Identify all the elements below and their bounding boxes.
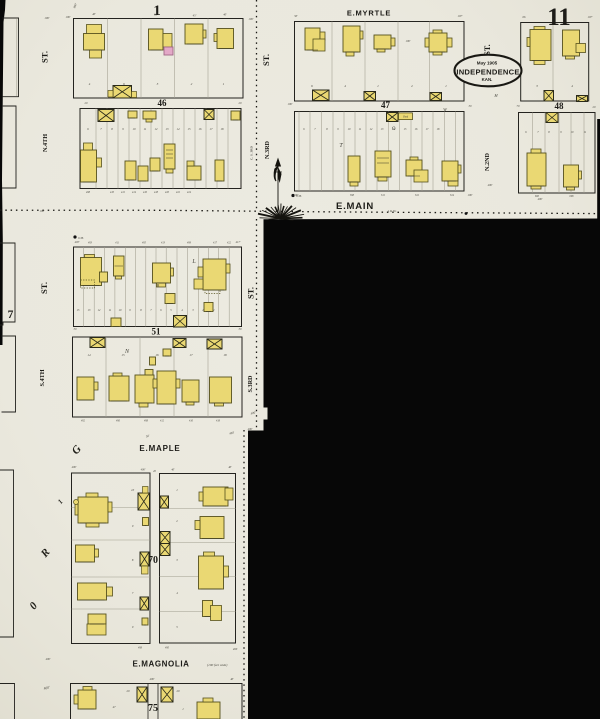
- svg-text:E.MAPLE: E.MAPLE: [139, 444, 180, 453]
- svg-text:E.MYRTLE: E.MYRTLE: [347, 9, 391, 18]
- svg-text:400′: 400′: [488, 183, 493, 187]
- svg-text:20: 20: [177, 689, 181, 693]
- svg-text:1: 1: [153, 3, 161, 19]
- svg-text:17: 17: [189, 353, 193, 357]
- svg-text:1: 1: [445, 84, 447, 88]
- svg-text:N.4TH: N.4TH: [42, 134, 49, 152]
- svg-text:15: 15: [188, 127, 192, 131]
- svg-text:400′: 400′: [150, 677, 155, 681]
- svg-text:400′: 400′: [538, 197, 543, 201]
- svg-text:45′: 45′: [193, 13, 197, 17]
- svg-text:2: 2: [411, 84, 413, 88]
- svg-text:107′: 107′: [588, 15, 593, 19]
- svg-text:INDEPENDENCE: INDEPENDENCE: [456, 68, 519, 77]
- svg-text:ST.: ST.: [39, 282, 49, 294]
- svg-text:40′: 40′: [230, 677, 234, 681]
- svg-text:47: 47: [381, 100, 391, 110]
- svg-text:N.2ND: N.2ND: [484, 152, 491, 171]
- svg-text:51: 51: [152, 327, 162, 337]
- svg-text:11: 11: [547, 4, 571, 31]
- svg-text:46: 46: [158, 98, 168, 108]
- svg-text:100′: 100′: [288, 102, 293, 106]
- svg-text:50′: 50′: [294, 14, 298, 18]
- svg-text:ST.: ST.: [40, 51, 50, 63]
- svg-text:6: 6: [311, 84, 313, 88]
- svg-text:14: 14: [87, 353, 91, 357]
- svg-text:4: 4: [344, 84, 346, 88]
- svg-text:100′: 100′: [294, 193, 299, 197]
- svg-text:7: 7: [8, 309, 14, 321]
- svg-text:100′: 100′: [468, 193, 473, 197]
- svg-text:L: L: [191, 259, 196, 265]
- svg-text:18: 18: [221, 127, 225, 131]
- svg-text:400′: 400′: [72, 465, 77, 469]
- svg-text:107′: 107′: [458, 14, 463, 18]
- svg-text:100′: 100′: [406, 39, 411, 43]
- svg-text:N.3RD: N.3RD: [264, 140, 271, 159]
- svg-text:100′: 100′: [248, 17, 254, 21]
- svg-text:40′: 40′: [171, 469, 175, 472]
- svg-text:4: 4: [571, 84, 573, 88]
- svg-text:Shed: Shed: [403, 116, 409, 119]
- svg-text:16: 16: [199, 127, 203, 131]
- svg-text:ST.: ST.: [261, 54, 271, 66]
- svg-text:May 1905: May 1905: [477, 61, 498, 66]
- svg-text:40′: 40′: [92, 12, 96, 16]
- svg-text:403′: 403′: [75, 240, 80, 244]
- svg-text:2: 2: [191, 82, 193, 86]
- svg-text:E.MAIN: E.MAIN: [336, 201, 374, 212]
- svg-text:100′: 100′: [66, 15, 71, 19]
- svg-text:KAN.: KAN.: [482, 77, 493, 82]
- svg-text:48: 48: [555, 101, 565, 111]
- svg-text:O: O: [392, 127, 396, 132]
- svg-text:12: 12: [155, 127, 159, 131]
- svg-text:ST.: ST.: [246, 287, 256, 299]
- svg-text:18: 18: [223, 353, 227, 357]
- svg-text:47: 47: [113, 705, 117, 709]
- svg-text:(100 feet wide): (100 feet wide): [207, 663, 228, 667]
- svg-text:16: 16: [155, 353, 159, 357]
- svg-text:400′: 400′: [248, 427, 253, 431]
- svg-text:C. S. 3RD: C. S. 3RD: [250, 145, 254, 159]
- svg-text:40′: 40′: [228, 465, 232, 469]
- svg-text:100′: 100′: [44, 16, 50, 20]
- svg-text:4 & Dr.: 4 & Dr.: [387, 209, 397, 213]
- svg-text:3: 3: [536, 84, 538, 88]
- svg-text:S.4TH: S.4TH: [39, 369, 46, 386]
- svg-text:3: 3: [157, 82, 159, 86]
- svg-text:400′: 400′: [46, 657, 51, 661]
- svg-text:60′: 60′: [154, 13, 158, 17]
- svg-text:10: 10: [133, 127, 137, 131]
- svg-text:10: 10: [131, 488, 135, 492]
- svg-text:14: 14: [177, 127, 181, 131]
- svg-text:1: 1: [377, 84, 379, 88]
- svg-text:400′: 400′: [141, 469, 146, 472]
- svg-text:40′: 40′: [223, 13, 227, 17]
- svg-text:20: 20: [127, 689, 131, 693]
- svg-text:100′: 100′: [40, 209, 45, 213]
- svg-text:400: 400: [233, 647, 238, 651]
- svg-text:75: 75: [148, 703, 158, 714]
- svg-text:13: 13: [166, 127, 170, 131]
- svg-text:S.3RD: S.3RD: [247, 375, 254, 393]
- svg-text:17: 17: [210, 127, 214, 131]
- svg-text:4: 4: [89, 82, 91, 86]
- svg-text:417′: 417′: [236, 240, 241, 244]
- svg-text:1: 1: [223, 82, 225, 86]
- svg-text:E.MAGNOLIA: E.MAGNOLIA: [132, 660, 189, 669]
